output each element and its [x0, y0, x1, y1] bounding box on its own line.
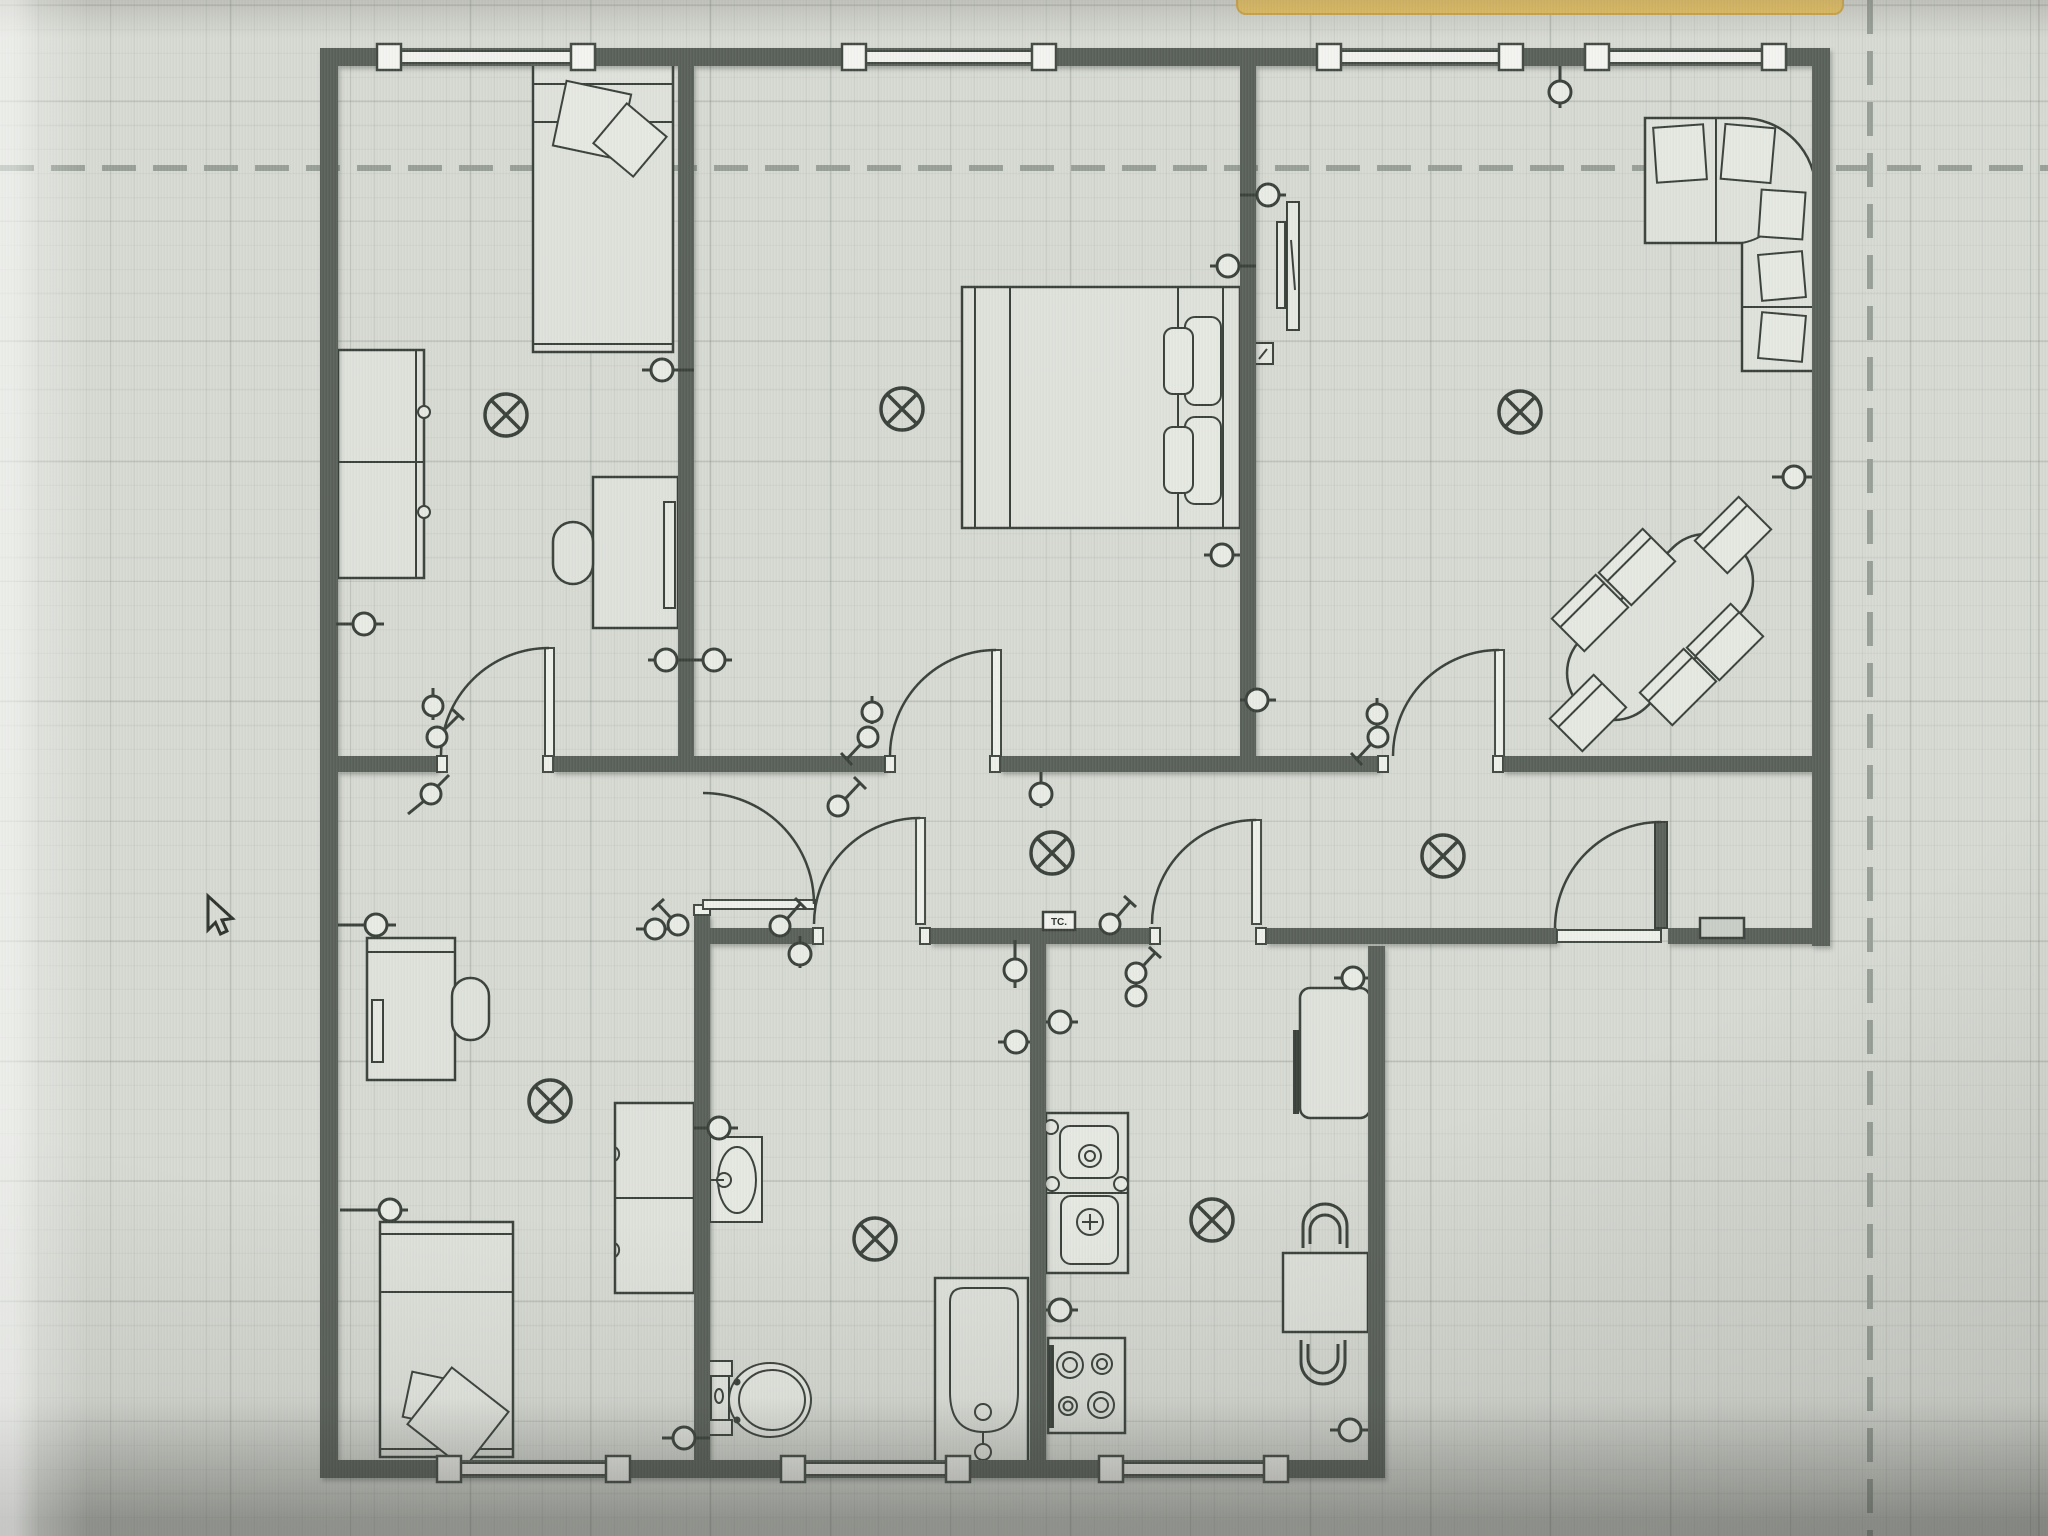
socket-icon	[1772, 466, 1812, 488]
door-room-top-left	[441, 648, 554, 756]
switch-icon	[408, 775, 449, 814]
tc-box[interactable]: TC.	[1043, 912, 1075, 930]
desk-top-left[interactable]	[593, 477, 678, 628]
ceiling-light-icon	[854, 1218, 896, 1260]
sofa-pillow	[1758, 312, 1806, 362]
socket-icon	[998, 1031, 1030, 1053]
switch-icon	[828, 777, 866, 816]
wardrobe-bottom-left[interactable]	[615, 1103, 694, 1293]
ceiling-light-icon	[529, 1080, 571, 1122]
pillow	[1164, 427, 1193, 493]
sofa-pillow	[1721, 124, 1776, 183]
socket-icon	[338, 914, 396, 936]
doors[interactable]	[441, 648, 1667, 928]
ceiling-light-icon	[1499, 391, 1541, 433]
dining-table-set[interactable]	[1548, 497, 1773, 751]
socket-icon	[1030, 772, 1052, 808]
single-bed-top-left[interactable]	[533, 64, 673, 352]
single-bed-bottom-left[interactable]	[380, 1222, 513, 1469]
background-window-bar[interactable]	[1237, 0, 1843, 14]
sofa-pillow	[1653, 124, 1707, 182]
switch-icon	[636, 919, 672, 939]
screen-photo: TC.	[0, 0, 2048, 1536]
socket-icon	[1004, 940, 1026, 988]
window	[1317, 44, 1523, 70]
socket-icon	[694, 649, 732, 671]
window	[1585, 44, 1786, 70]
kitchen-table-set[interactable]	[1283, 1204, 1368, 1384]
fridge[interactable]	[1293, 988, 1370, 1118]
tc-box-label: TC.	[1051, 917, 1067, 928]
socket-icon	[1330, 1419, 1368, 1441]
socket-icon	[1334, 967, 1368, 989]
toilet[interactable]	[708, 1361, 811, 1437]
door-kitchen	[1152, 820, 1261, 924]
sofa-pillow	[1758, 190, 1805, 240]
desk-chair-top-left[interactable]	[553, 522, 593, 584]
socket-icon	[1046, 1011, 1078, 1033]
desk-chair-bottom-left[interactable]	[452, 978, 489, 1040]
window	[1099, 1456, 1288, 1482]
bathtub[interactable]	[935, 1278, 1028, 1464]
ceiling-light-icon	[485, 394, 527, 436]
switch-icon	[1126, 947, 1161, 983]
ceiling-light-icon	[881, 388, 923, 430]
switch-icon	[423, 688, 443, 720]
switch-icon	[862, 696, 882, 724]
door-living-room	[1393, 650, 1504, 756]
electrical-panel-box[interactable]	[1700, 918, 1744, 938]
double-bed-middle[interactable]	[962, 287, 1240, 528]
switch-icon	[1367, 698, 1387, 726]
socket-icon	[336, 613, 384, 635]
door-room-middle	[890, 650, 1001, 756]
switch-icon	[1126, 983, 1146, 1006]
door-entrance	[1555, 822, 1667, 928]
tv-wall-mounted[interactable]	[1277, 202, 1299, 330]
corner-sofa[interactable]	[1645, 118, 1816, 371]
wardrobe-top-left[interactable]	[338, 350, 430, 578]
kitchen-sink-unit[interactable]	[1044, 1113, 1128, 1273]
ceiling-light-icon	[1422, 835, 1464, 877]
stove[interactable]	[1048, 1338, 1125, 1433]
door-bottom-left-room	[703, 793, 815, 909]
socket-icon	[1549, 66, 1571, 108]
bathroom-sink[interactable]	[710, 1137, 762, 1222]
ceiling-light-icon	[1031, 832, 1073, 874]
door-bathroom	[814, 818, 925, 924]
kitchen-table	[1283, 1253, 1368, 1332]
window	[842, 44, 1056, 70]
desk-bottom-left[interactable]	[367, 938, 455, 1080]
pillow	[1164, 328, 1193, 394]
ceiling-light-icon	[1191, 1199, 1233, 1241]
socket-icon	[1204, 544, 1240, 566]
mouse-cursor-icon	[208, 896, 233, 934]
socket-icon	[340, 1199, 408, 1221]
socket-icon	[1046, 1299, 1078, 1321]
sofa-pillow	[1758, 251, 1806, 301]
